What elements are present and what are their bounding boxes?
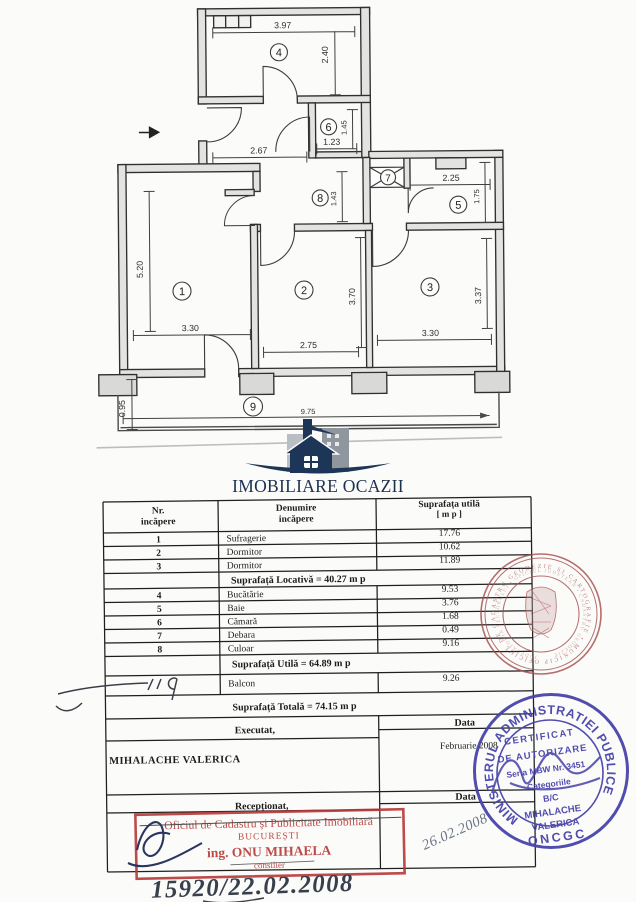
svg-text:3.30: 3.30 <box>182 323 199 333</box>
svg-text:MIHALACHE VALERICA: MIHALACHE VALERICA <box>109 754 241 767</box>
svg-text:Denumire: Denumire <box>276 503 317 513</box>
svg-text:9: 9 <box>250 401 256 413</box>
svg-text:Baie: Baie <box>227 604 245 614</box>
svg-text:15920/22.02.2008: 15920/22.02.2008 <box>151 870 355 902</box>
svg-text:3.37: 3.37 <box>473 287 483 304</box>
svg-text:3.76: 3.76 <box>442 598 459 608</box>
svg-text:Suprafață Totală = 74.15 m p: Suprafață Totală = 74.15 m p <box>232 701 357 714</box>
svg-text:9.53: 9.53 <box>442 585 459 595</box>
svg-text:Dormitor: Dormitor <box>227 548 263 558</box>
svg-text:1: 1 <box>179 286 185 298</box>
svg-text:10.62: 10.62 <box>439 542 461 552</box>
svg-text:[ m p ]: [ m p ] <box>436 509 461 519</box>
svg-text:6: 6 <box>157 618 162 628</box>
svg-text:1.68: 1.68 <box>442 612 459 622</box>
svg-text:BUCUREȘTI: BUCUREȘTI <box>238 831 300 842</box>
svg-text:8: 8 <box>157 645 162 655</box>
svg-text:1.75: 1.75 <box>472 189 481 204</box>
svg-text:2: 2 <box>156 549 161 559</box>
svg-text:Data: Data <box>454 717 475 728</box>
svg-text:1.43: 1.43 <box>329 191 338 206</box>
svg-text:5.20: 5.20 <box>135 261 145 278</box>
svg-text:9.16: 9.16 <box>442 639 459 649</box>
svg-text:7: 7 <box>385 173 391 184</box>
svg-text:7: 7 <box>157 632 162 642</box>
svg-text:4: 4 <box>157 591 162 601</box>
svg-text:17.76: 17.76 <box>439 529 461 539</box>
svg-text:Oficiul de Cadastru și Publici: Oficiul de Cadastru și Publicitate Imobi… <box>164 814 374 832</box>
svg-text:2.25: 2.25 <box>442 173 459 183</box>
svg-text:Debara: Debara <box>228 631 256 641</box>
svg-text:Executat,: Executat, <box>235 725 276 736</box>
svg-text:1.23: 1.23 <box>323 137 340 147</box>
svg-text:26.02.2008: 26.02.2008 <box>420 810 491 853</box>
svg-text:9.75: 9.75 <box>301 407 316 416</box>
svg-text:3: 3 <box>427 282 433 294</box>
svg-text:consilier: consilier <box>254 860 285 871</box>
svg-text:Data: Data <box>455 791 476 802</box>
svg-text:1.45: 1.45 <box>340 120 349 135</box>
svg-text:3.97: 3.97 <box>274 20 291 30</box>
svg-text:5: 5 <box>157 605 162 615</box>
svg-text:Cămară: Cămară <box>227 617 257 627</box>
svg-text:3.30: 3.30 <box>422 328 439 338</box>
svg-text:0.95: 0.95 <box>117 400 127 417</box>
svg-text:incăpere: incăpere <box>279 514 314 524</box>
svg-text:Bucătărie: Bucătărie <box>227 590 264 600</box>
svg-text:0.49: 0.49 <box>442 625 459 635</box>
svg-text:6: 6 <box>325 122 331 134</box>
svg-text:IMOBILIARE OCAZII: IMOBILIARE OCAZII <box>232 476 404 496</box>
svg-text:Suprafață Locativă = 40.27 m: Suprafață Locativă = 40.27 m p <box>231 574 366 587</box>
svg-text:2.67: 2.67 <box>250 145 267 155</box>
svg-text:2.40: 2.40 <box>320 46 330 63</box>
svg-text:Dormitor: Dormitor <box>227 561 263 571</box>
svg-text:3: 3 <box>156 562 161 572</box>
svg-text:Culoar: Culoar <box>228 644 255 654</box>
svg-text:Sufragerie: Sufragerie <box>226 533 266 544</box>
svg-text:2.75: 2.75 <box>300 340 317 350</box>
svg-text:Balcon: Balcon <box>228 679 255 689</box>
svg-text:4: 4 <box>276 47 282 59</box>
svg-text:Nr.: Nr. <box>152 506 165 516</box>
svg-text:2: 2 <box>301 285 307 297</box>
svg-text:Suprafață Utilă = 64.89 m p: Suprafață Utilă = 64.89 m p <box>232 658 351 670</box>
svg-text:ing. ONU MIHAELA: ing. ONU MIHAELA <box>207 843 332 861</box>
svg-text:5: 5 <box>455 200 461 212</box>
svg-text:11.89: 11.89 <box>439 556 460 566</box>
svg-text:8: 8 <box>317 193 323 205</box>
svg-text:incăpere: incăpere <box>141 517 176 527</box>
svg-text:3.70: 3.70 <box>347 288 357 305</box>
svg-text:9.26: 9.26 <box>443 674 460 684</box>
svg-text:1: 1 <box>156 535 161 545</box>
svg-text:B/C: B/C <box>542 792 559 804</box>
